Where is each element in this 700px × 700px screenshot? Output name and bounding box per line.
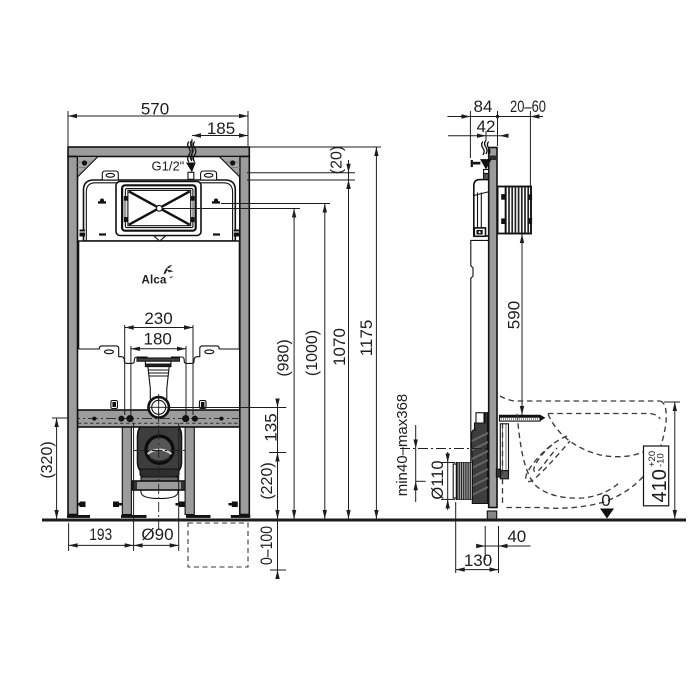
svg-text:193: 193 xyxy=(89,525,112,544)
svg-text:0: 0 xyxy=(601,491,610,510)
svg-text:84: 84 xyxy=(474,97,493,116)
svg-text:590: 590 xyxy=(505,301,524,329)
svg-text:(980): (980) xyxy=(276,339,293,376)
svg-text:(20): (20) xyxy=(329,146,346,174)
svg-text:Ø90: Ø90 xyxy=(141,525,173,544)
svg-text:Alca: Alca xyxy=(142,275,167,287)
svg-text:G1/2": G1/2" xyxy=(152,159,185,174)
svg-text:135: 135 xyxy=(262,413,281,441)
svg-text:min40–max368: min40–max368 xyxy=(394,394,411,497)
svg-text:40: 40 xyxy=(507,527,526,546)
svg-text:130: 130 xyxy=(464,551,492,570)
svg-text:42: 42 xyxy=(477,117,496,136)
svg-text:230: 230 xyxy=(144,309,172,328)
svg-text:20–60: 20–60 xyxy=(510,97,546,116)
svg-text:(220): (220) xyxy=(259,462,276,499)
svg-text:Ø110: Ø110 xyxy=(429,460,447,499)
svg-text:(320): (320) xyxy=(39,441,56,478)
svg-text:185: 185 xyxy=(207,119,235,138)
svg-text:1070: 1070 xyxy=(330,328,349,366)
svg-text:570: 570 xyxy=(141,100,169,119)
svg-text:0–100: 0–100 xyxy=(257,526,276,565)
svg-text:1175: 1175 xyxy=(357,320,376,357)
svg-text:(1000): (1000) xyxy=(304,330,321,376)
svg-text:180: 180 xyxy=(144,330,172,349)
svg-text:-10: -10 xyxy=(656,453,667,467)
svg-text:410: 410 xyxy=(649,469,671,502)
